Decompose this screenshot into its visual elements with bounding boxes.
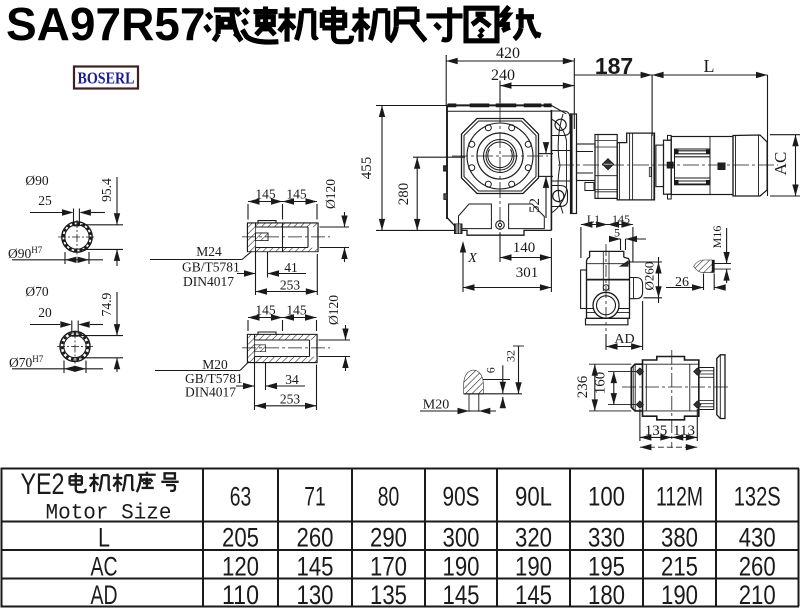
- svg-text:Ø120: Ø120: [323, 179, 338, 209]
- svg-text:320: 320: [515, 523, 552, 553]
- svg-text:DIN4017: DIN4017: [185, 385, 236, 400]
- svg-text:Ø90: Ø90: [25, 173, 48, 188]
- svg-text:301: 301: [516, 265, 539, 281]
- svg-text:63: 63: [230, 482, 252, 512]
- svg-text:180: 180: [588, 580, 625, 610]
- svg-text:210: 210: [739, 580, 776, 610]
- svg-text:5: 5: [614, 226, 620, 240]
- svg-text:AC: AC: [771, 152, 790, 176]
- svg-text:300: 300: [443, 523, 480, 553]
- svg-text:X: X: [467, 251, 477, 266]
- svg-text:YE2: YE2: [21, 468, 65, 501]
- svg-text:AD: AD: [91, 580, 118, 610]
- svg-text:236: 236: [575, 375, 591, 398]
- svg-text:140: 140: [513, 240, 536, 256]
- svg-text:380: 380: [661, 523, 698, 553]
- svg-text:132S: 132S: [734, 482, 781, 512]
- svg-text:AC: AC: [91, 552, 118, 582]
- svg-text:80: 80: [378, 482, 400, 512]
- svg-text:SA97R57: SA97R57: [6, 0, 205, 50]
- svg-text:32: 32: [504, 350, 518, 362]
- svg-text:100: 100: [588, 482, 625, 512]
- svg-text:145: 145: [286, 187, 307, 202]
- svg-text:BOSERL: BOSERL: [78, 69, 135, 88]
- svg-text:430: 430: [739, 523, 776, 553]
- svg-text:190: 190: [661, 580, 698, 610]
- svg-text:455: 455: [359, 157, 375, 180]
- svg-text:Ø260: Ø260: [642, 262, 657, 291]
- svg-text:280: 280: [396, 183, 412, 206]
- svg-text:Ø70: Ø70: [25, 284, 48, 299]
- svg-text:112M: 112M: [656, 482, 703, 512]
- svg-text:190: 190: [515, 552, 552, 582]
- svg-text:420: 420: [496, 45, 520, 62]
- svg-text:120: 120: [222, 552, 259, 582]
- svg-text:95.4: 95.4: [99, 178, 114, 202]
- svg-text:145: 145: [297, 552, 334, 582]
- svg-text:160: 160: [593, 372, 609, 395]
- svg-text:DIN4017: DIN4017: [183, 274, 234, 289]
- svg-text:145: 145: [286, 303, 307, 318]
- svg-text:290: 290: [370, 523, 407, 553]
- svg-text:6: 6: [484, 367, 498, 373]
- svg-text:170: 170: [370, 552, 407, 582]
- svg-text:205: 205: [222, 523, 259, 553]
- svg-text:L: L: [704, 56, 715, 76]
- svg-text:253: 253: [280, 278, 301, 293]
- svg-text:M24: M24: [196, 244, 222, 259]
- svg-text:130: 130: [297, 580, 334, 610]
- svg-text:90L: 90L: [515, 482, 552, 512]
- svg-text:M16: M16: [710, 226, 724, 249]
- svg-text:GB/T5781: GB/T5781: [182, 260, 240, 275]
- svg-text:20: 20: [38, 305, 52, 320]
- svg-text:145: 145: [515, 580, 552, 610]
- svg-text:215: 215: [661, 552, 698, 582]
- svg-text:Ø120: Ø120: [326, 295, 341, 325]
- svg-text:260: 260: [297, 523, 334, 553]
- svg-text:190: 190: [443, 552, 480, 582]
- svg-text:L: L: [98, 523, 110, 553]
- svg-text:260: 260: [739, 552, 776, 582]
- svg-text:110: 110: [222, 580, 259, 610]
- svg-text:135: 135: [370, 580, 407, 610]
- svg-text:41: 41: [284, 260, 298, 275]
- svg-text:253: 253: [280, 392, 301, 407]
- svg-text:34: 34: [285, 372, 299, 387]
- svg-text:71: 71: [304, 482, 326, 512]
- svg-text:330: 330: [588, 523, 625, 553]
- svg-text:M20: M20: [202, 357, 228, 372]
- svg-text:M20: M20: [423, 398, 449, 413]
- svg-text:240: 240: [491, 67, 515, 84]
- svg-text:74.9: 74.9: [99, 292, 114, 316]
- svg-text:145: 145: [443, 580, 480, 610]
- svg-text:90S: 90S: [443, 482, 480, 512]
- svg-text:52: 52: [527, 198, 543, 213]
- svg-text:25: 25: [38, 193, 52, 208]
- svg-text:195: 195: [588, 552, 625, 582]
